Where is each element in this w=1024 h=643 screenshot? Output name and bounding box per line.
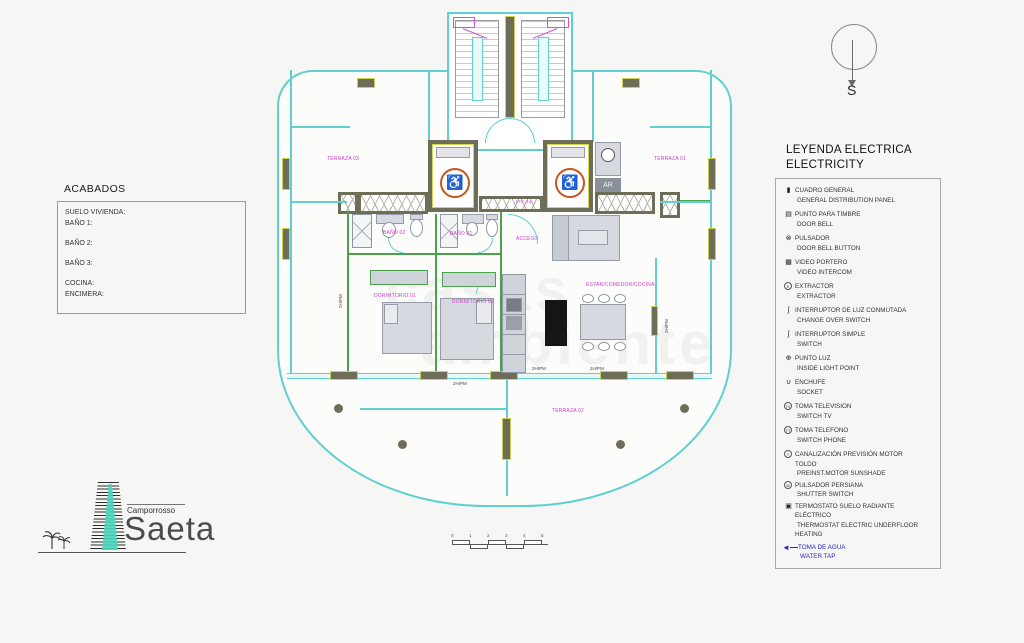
compass-circle-icon xyxy=(831,24,877,70)
water-tap-arrow-icon: ◄ xyxy=(782,543,790,552)
legend-es: CANALIZACIÓN PREVISIÓN MOTOR TOLDO xyxy=(795,451,903,468)
legend-title-es: LEYENDA ELECTRICA xyxy=(786,143,912,158)
fridge-icon xyxy=(506,316,522,330)
scale-tick: 5 xyxy=(541,533,544,538)
wall-segment xyxy=(592,70,594,142)
legend-es: PULSADOR PERSIANA xyxy=(795,482,863,489)
duct-shaft xyxy=(660,192,680,218)
door-bell-point-icon: ▤ xyxy=(782,210,795,229)
stair-handrail xyxy=(538,37,549,101)
scale-bar: 0 1 2 3 4 5 xyxy=(452,533,548,555)
legend-title-en: ELECTRICITY xyxy=(786,158,912,173)
tv-socket-icon: TV xyxy=(784,402,792,410)
legend-row: TV TOMA TELEVISIONSWITCH TV xyxy=(782,402,935,421)
appliance-ar-label: AR xyxy=(603,182,613,189)
wall-segment xyxy=(290,126,350,128)
room-label-terraza02: TERRAZA 02 xyxy=(552,408,584,414)
scale-tick: 1 xyxy=(469,533,472,538)
wall-segment xyxy=(710,70,712,377)
legend-en: VIDEO INTERCOM xyxy=(797,269,852,276)
legend-row: ▤ PUNTO PARA TIMBREDOOR BELL xyxy=(782,210,935,229)
bed-pillow xyxy=(384,304,398,324)
dim-label: 2H/PM xyxy=(590,366,604,371)
scale-tick: 3 xyxy=(505,533,508,538)
video-intercom-icon: ▦ xyxy=(782,258,795,277)
stair-landing xyxy=(547,17,569,28)
staircase-left xyxy=(455,20,499,118)
wall-segment xyxy=(290,70,292,377)
dining-table xyxy=(580,304,626,340)
legend-en: INSIDE LIGHT POINT xyxy=(797,365,859,372)
legend-es: TERMOSTATO SUELO RADIANTE ELÉCTRICO xyxy=(795,503,894,520)
dim-label: 2H/PM xyxy=(532,366,546,371)
staircase-right xyxy=(521,20,565,118)
legend-en: SHUTTER SWITCH xyxy=(797,491,853,498)
column xyxy=(666,371,694,380)
duct-shaft xyxy=(338,192,358,214)
acabados-line: SUELO VIVIENDA: xyxy=(65,209,245,216)
acabados-box: SUELO VIVIENDA: BAÑO 1: BAÑO 2: BAÑO 3: … xyxy=(57,201,246,314)
wall-segment xyxy=(290,201,347,203)
wheelchair-icon: ♿ xyxy=(446,174,463,190)
room-label-dorm01: DORMITORIO 01 xyxy=(374,293,416,299)
wall-segment xyxy=(347,212,349,375)
column xyxy=(282,228,290,260)
room-label-terraza01: TERRAZA 01 xyxy=(654,156,686,162)
legend-row: ⊗ PULSADORDOOR BELL BUTTON xyxy=(782,234,935,253)
legend-row: E EXTRACTOREXTRACTOR xyxy=(782,282,935,301)
scale-bar-segment xyxy=(488,540,506,545)
legend-es: PUNTO PARA TIMBRE xyxy=(795,211,860,218)
palm-trees-icon xyxy=(40,520,80,550)
column xyxy=(330,371,358,380)
sink-icon xyxy=(601,148,615,162)
room-label-bano01: BAÑO 01 xyxy=(450,231,473,237)
push-button-icon: ⊗ xyxy=(782,234,795,253)
acabados-line: COCINA: xyxy=(65,280,245,287)
legend-en: SWITCH PHONE xyxy=(797,437,846,444)
stair-landing xyxy=(453,17,475,28)
shower xyxy=(352,214,372,248)
door-arc xyxy=(510,118,535,143)
unit-label: VIV. 14 xyxy=(516,199,532,204)
legend-es: CUADRO GENERAL xyxy=(795,187,854,194)
wardrobe xyxy=(442,272,496,287)
legend-en: WATER TAP xyxy=(800,553,835,560)
legend-row: TT TOMA TELEFONOSWITCH PHONE xyxy=(782,426,935,445)
kitchen-island xyxy=(545,300,567,346)
legend-en: SOCKET xyxy=(797,389,823,396)
wardrobe xyxy=(370,270,428,285)
acabados-line: BAÑO 1: xyxy=(65,220,245,227)
acabados-line: ENCIMERA: xyxy=(65,291,245,298)
legend-en: SWITCH xyxy=(797,341,822,348)
light-point-icon: ⊕ xyxy=(782,354,795,373)
legend-row-water: ◄ TOMA DE AGUAWATER TAP xyxy=(782,543,935,562)
sunshade-motor-icon: T xyxy=(784,450,792,458)
legend-es: PULSADOR xyxy=(795,235,830,242)
scale-tick: 2 xyxy=(487,533,490,538)
acabados-line: BAÑO 3: xyxy=(65,260,245,267)
column xyxy=(708,228,716,260)
wheelchair-badge: ♿ xyxy=(440,168,470,198)
column xyxy=(357,78,375,88)
scale-tick: 0 xyxy=(451,533,454,538)
oven-icon xyxy=(506,298,522,312)
coffee-table xyxy=(578,230,608,245)
legend-row: ▣ TERMOSTATO SUELO RADIANTE ELÉCTRICOTHE… xyxy=(782,502,935,540)
legend-row: ▦ VIDEO PORTEROVIDEO INTERCOM xyxy=(782,258,935,277)
compass-label: S xyxy=(847,82,856,98)
phone-socket-icon: TT xyxy=(784,426,792,434)
chair xyxy=(614,342,626,351)
legend-es: TOMA TELEVISION xyxy=(795,403,851,410)
extractor-icon: E xyxy=(784,282,792,290)
legend-es: INTERRUPTOR DE LUZ CONMUTADA xyxy=(795,307,906,314)
scale-bar-segment xyxy=(506,544,524,549)
socket-icon: ∪ xyxy=(782,378,795,397)
legend-en: GENERAL DISTRIBUTION PANEL xyxy=(797,197,895,204)
legend-es: TOMA DE AGUA xyxy=(798,544,845,551)
water-tap-arrow-tail xyxy=(790,547,798,548)
wall-segment xyxy=(360,408,506,410)
switch-icon: ʃ xyxy=(782,330,795,349)
legend-title: LEYENDA ELECTRICA ELECTRICITY xyxy=(786,143,912,173)
door-arc xyxy=(485,118,510,143)
legend-row: M PULSADOR PERSIANASHUTTER SWITCH xyxy=(782,481,935,500)
dim-label: 2H/PM xyxy=(664,319,669,333)
wall-segment xyxy=(437,253,502,255)
wall-segment xyxy=(435,214,437,375)
legend-en: PREINST.MOTOR SUNSHADE xyxy=(797,470,885,477)
sofa-chaise xyxy=(552,215,569,261)
legend-es: PUNTO LUZ xyxy=(795,355,831,362)
scale-bar-segment xyxy=(452,540,470,545)
distribution-panel-icon: ▮ xyxy=(782,186,795,205)
terrace-column xyxy=(334,404,343,413)
column xyxy=(502,418,511,460)
legend-es: INTERRUPTOR SIMPLE xyxy=(795,331,865,338)
wall-segment xyxy=(428,70,430,142)
core-center-wall xyxy=(505,16,515,118)
elevator-left: ♿ xyxy=(428,140,478,212)
legend-es: ENCHUFE xyxy=(795,379,825,386)
legend-en: EXTRACTOR xyxy=(797,293,836,300)
column xyxy=(622,78,640,88)
lift-machine xyxy=(551,147,585,158)
shutter-switch-icon: M xyxy=(784,481,792,489)
legend-en: CHANGE OVER SWITCH xyxy=(797,317,870,324)
legend-es: EXTRACTOR xyxy=(795,283,834,290)
legend-row: ∪ ENCHUFESOCKET xyxy=(782,378,935,397)
legend-en: SWITCH TV xyxy=(797,413,832,420)
stair-handrail xyxy=(472,37,483,101)
duct-band xyxy=(595,192,655,214)
dim-label: 2H/PM xyxy=(338,294,343,308)
logo-baseline xyxy=(38,552,186,553)
floor-plan: casas ambiente ♿ xyxy=(270,8,740,568)
terrace-column xyxy=(616,440,625,449)
toilet-icon xyxy=(486,219,498,237)
wheelchair-icon: ♿ xyxy=(561,174,578,190)
terrace-column xyxy=(398,440,407,449)
legend-es: TOMA TELEFONO xyxy=(795,427,848,434)
duct-band xyxy=(479,196,543,212)
chair xyxy=(582,342,594,351)
chair xyxy=(614,294,626,303)
wall-segment xyxy=(349,253,437,255)
scale-tick: 4 xyxy=(523,533,526,538)
scale-bar-segment xyxy=(524,540,542,545)
legend-row: ⊕ PUNTO LUZINSIDE LIGHT POINT xyxy=(782,354,935,373)
wall-segment xyxy=(650,126,712,128)
wall-segment xyxy=(660,201,712,203)
lift-machine xyxy=(436,147,470,158)
legend-row: T CANALIZACIÓN PREVISIÓN MOTOR TOLDOPREI… xyxy=(782,450,935,479)
legend-row: ▮ CUADRO GENERALGENERAL DISTRIBUTION PAN… xyxy=(782,186,935,205)
legend-en: DOOR BELL BUTTON xyxy=(797,245,860,252)
elevator-right: ♿ xyxy=(543,140,593,212)
brand-name-label: Saeta xyxy=(124,514,215,544)
acabados-line: BAÑO 2: xyxy=(65,240,245,247)
chair xyxy=(598,342,610,351)
toilet-icon xyxy=(410,219,423,237)
column xyxy=(600,371,628,380)
room-label-dorm02: DORMITORIO 02 xyxy=(452,299,494,305)
chair xyxy=(582,294,594,303)
thermostat-icon: ▣ xyxy=(782,502,795,540)
changeover-switch-icon: ʃ xyxy=(782,306,795,325)
terrace-column xyxy=(680,404,689,413)
electric-legend: ▮ CUADRO GENERALGENERAL DISTRIBUTION PAN… xyxy=(775,178,941,569)
acabados-title: ACABADOS xyxy=(64,183,126,195)
room-label-bano02: BAÑO 02 xyxy=(383,230,406,236)
wheelchair-badge: ♿ xyxy=(555,168,585,198)
compass-arrow-icon xyxy=(852,40,853,82)
room-label-terraza03: TERRAZA 03 xyxy=(327,156,359,162)
legend-es: VIDEO PORTERO xyxy=(795,259,847,266)
stair-core xyxy=(447,12,573,151)
brand-logo: Camporrosso Saeta xyxy=(38,480,193,558)
acceso-label: ACCESO xyxy=(516,236,538,242)
scale-bar-segment xyxy=(470,544,488,549)
room-label-estar: ESTAR/COMEDOR/COCINA xyxy=(586,282,655,288)
column xyxy=(420,371,448,380)
column xyxy=(282,158,290,190)
column xyxy=(651,306,658,336)
floorplan-sheet: S ACABADOS SUELO VIVIENDA: BAÑO 1: BAÑO … xyxy=(0,0,1024,643)
legend-en: DOOR BELL xyxy=(797,221,833,228)
legend-row: ʃ INTERRUPTOR SIMPLESWITCH xyxy=(782,330,935,349)
column xyxy=(708,158,716,190)
chair xyxy=(598,294,610,303)
dim-label: 2H/PM xyxy=(453,381,467,386)
legend-row: ʃ INTERRUPTOR DE LUZ CONMUTADACHANGE OVE… xyxy=(782,306,935,325)
legend-en: THERMOSTAT ELECTRIC UNDERFLOOR HEATING xyxy=(795,522,918,539)
duct-band xyxy=(358,192,428,214)
